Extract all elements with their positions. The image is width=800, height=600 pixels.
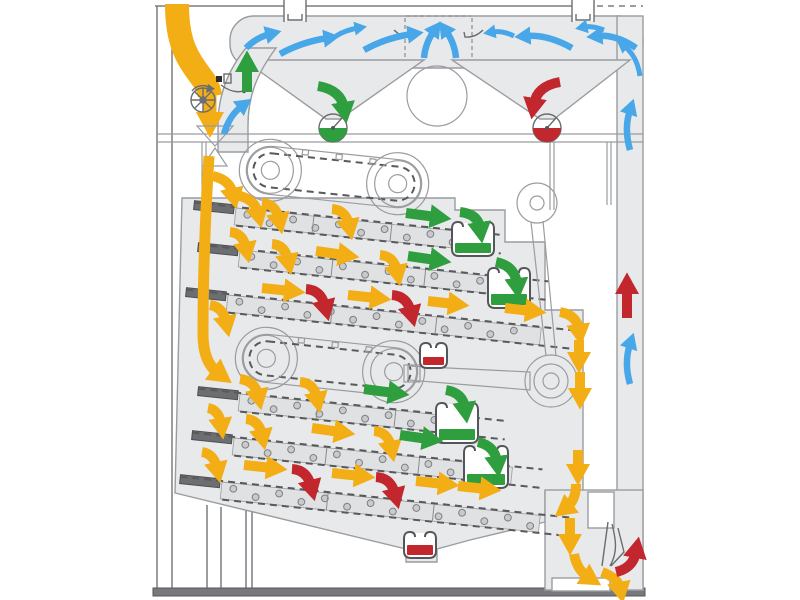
sieve-ball <box>407 420 414 427</box>
drive-pulley <box>517 183 557 223</box>
sieve-ball <box>427 230 434 237</box>
sieve-ball <box>381 225 388 232</box>
sieve-ball <box>270 261 277 268</box>
sieve-ball <box>526 522 533 529</box>
grain-cleaner-flow-diagram <box>0 0 800 600</box>
fan <box>407 66 467 126</box>
sieve-ball <box>464 322 471 329</box>
sieve-ball <box>293 402 300 409</box>
sieve-ball <box>476 277 483 284</box>
sieve-ball <box>487 330 494 337</box>
sieve-ball <box>266 219 273 226</box>
trough-contents <box>439 429 475 440</box>
sieve-ball <box>425 460 432 467</box>
good-trough-1 <box>452 222 494 256</box>
reject-cup-1 <box>420 343 447 368</box>
trough-contents <box>491 294 527 305</box>
good-trough-3 <box>436 403 478 443</box>
trough-contents <box>455 243 491 253</box>
sieve-ball <box>252 493 259 500</box>
trough-contents <box>423 357 444 365</box>
sieve-ball <box>230 485 237 492</box>
good-trough-4 <box>464 446 508 488</box>
sieve-ball <box>248 253 255 260</box>
sieve-ball <box>304 311 311 318</box>
sieve-ball <box>385 411 392 418</box>
sieve-ball <box>458 509 465 516</box>
sieve-ball <box>244 211 251 218</box>
trough-contents <box>407 545 433 555</box>
sieve-ball <box>504 514 511 521</box>
sieve-ball <box>236 298 243 305</box>
feed-inlet-chute <box>177 4 224 138</box>
outlet-opening <box>552 578 610 591</box>
sieve-ball <box>281 303 288 310</box>
sieve-ball <box>248 397 255 404</box>
sieve-ball <box>357 229 364 236</box>
sieve-ball <box>349 316 356 323</box>
sieve-ball <box>327 308 334 315</box>
sieve-ball <box>510 327 517 334</box>
sieve-ball <box>343 503 350 510</box>
sieve-ball <box>339 263 346 270</box>
sieve-ball <box>441 326 448 333</box>
sieve-ball <box>298 498 305 505</box>
sieve-ball <box>258 306 265 313</box>
sieve-ball <box>481 517 488 524</box>
sieve-ball <box>401 464 408 471</box>
sieve-ball <box>419 317 426 324</box>
sieve-ball <box>389 508 396 515</box>
sieve-ball <box>310 454 317 461</box>
sieve-ball <box>367 499 374 506</box>
sieve-ball <box>289 216 296 223</box>
sieve-ball <box>447 469 454 476</box>
outlet-gap <box>588 492 614 528</box>
sieve-ball <box>275 490 282 497</box>
sieve-ball <box>435 513 442 520</box>
sieve-ball <box>407 276 414 283</box>
sieve-ball <box>361 271 368 278</box>
sieve-ball <box>242 441 249 448</box>
sieve-ball <box>264 449 271 456</box>
sieve-ball <box>395 321 402 328</box>
sieve-ball <box>335 221 342 228</box>
reject-cup-2 <box>404 532 436 558</box>
sieve-ball <box>379 455 386 462</box>
sieve-ball <box>373 312 380 319</box>
sieve-ball <box>333 451 340 458</box>
sieve-ball <box>355 459 362 466</box>
sieve-ball <box>287 446 294 453</box>
sieve-ball <box>431 272 438 279</box>
sieve-ball <box>316 266 323 273</box>
sieve-ball <box>361 415 368 422</box>
sieve-ball <box>293 258 300 265</box>
sieve-ball <box>270 405 277 412</box>
sieve-ball <box>413 504 420 511</box>
sieve-ball <box>339 407 346 414</box>
sieve-ball <box>403 234 410 241</box>
machine-diagram <box>0 0 800 600</box>
sieve-ball <box>453 281 460 288</box>
